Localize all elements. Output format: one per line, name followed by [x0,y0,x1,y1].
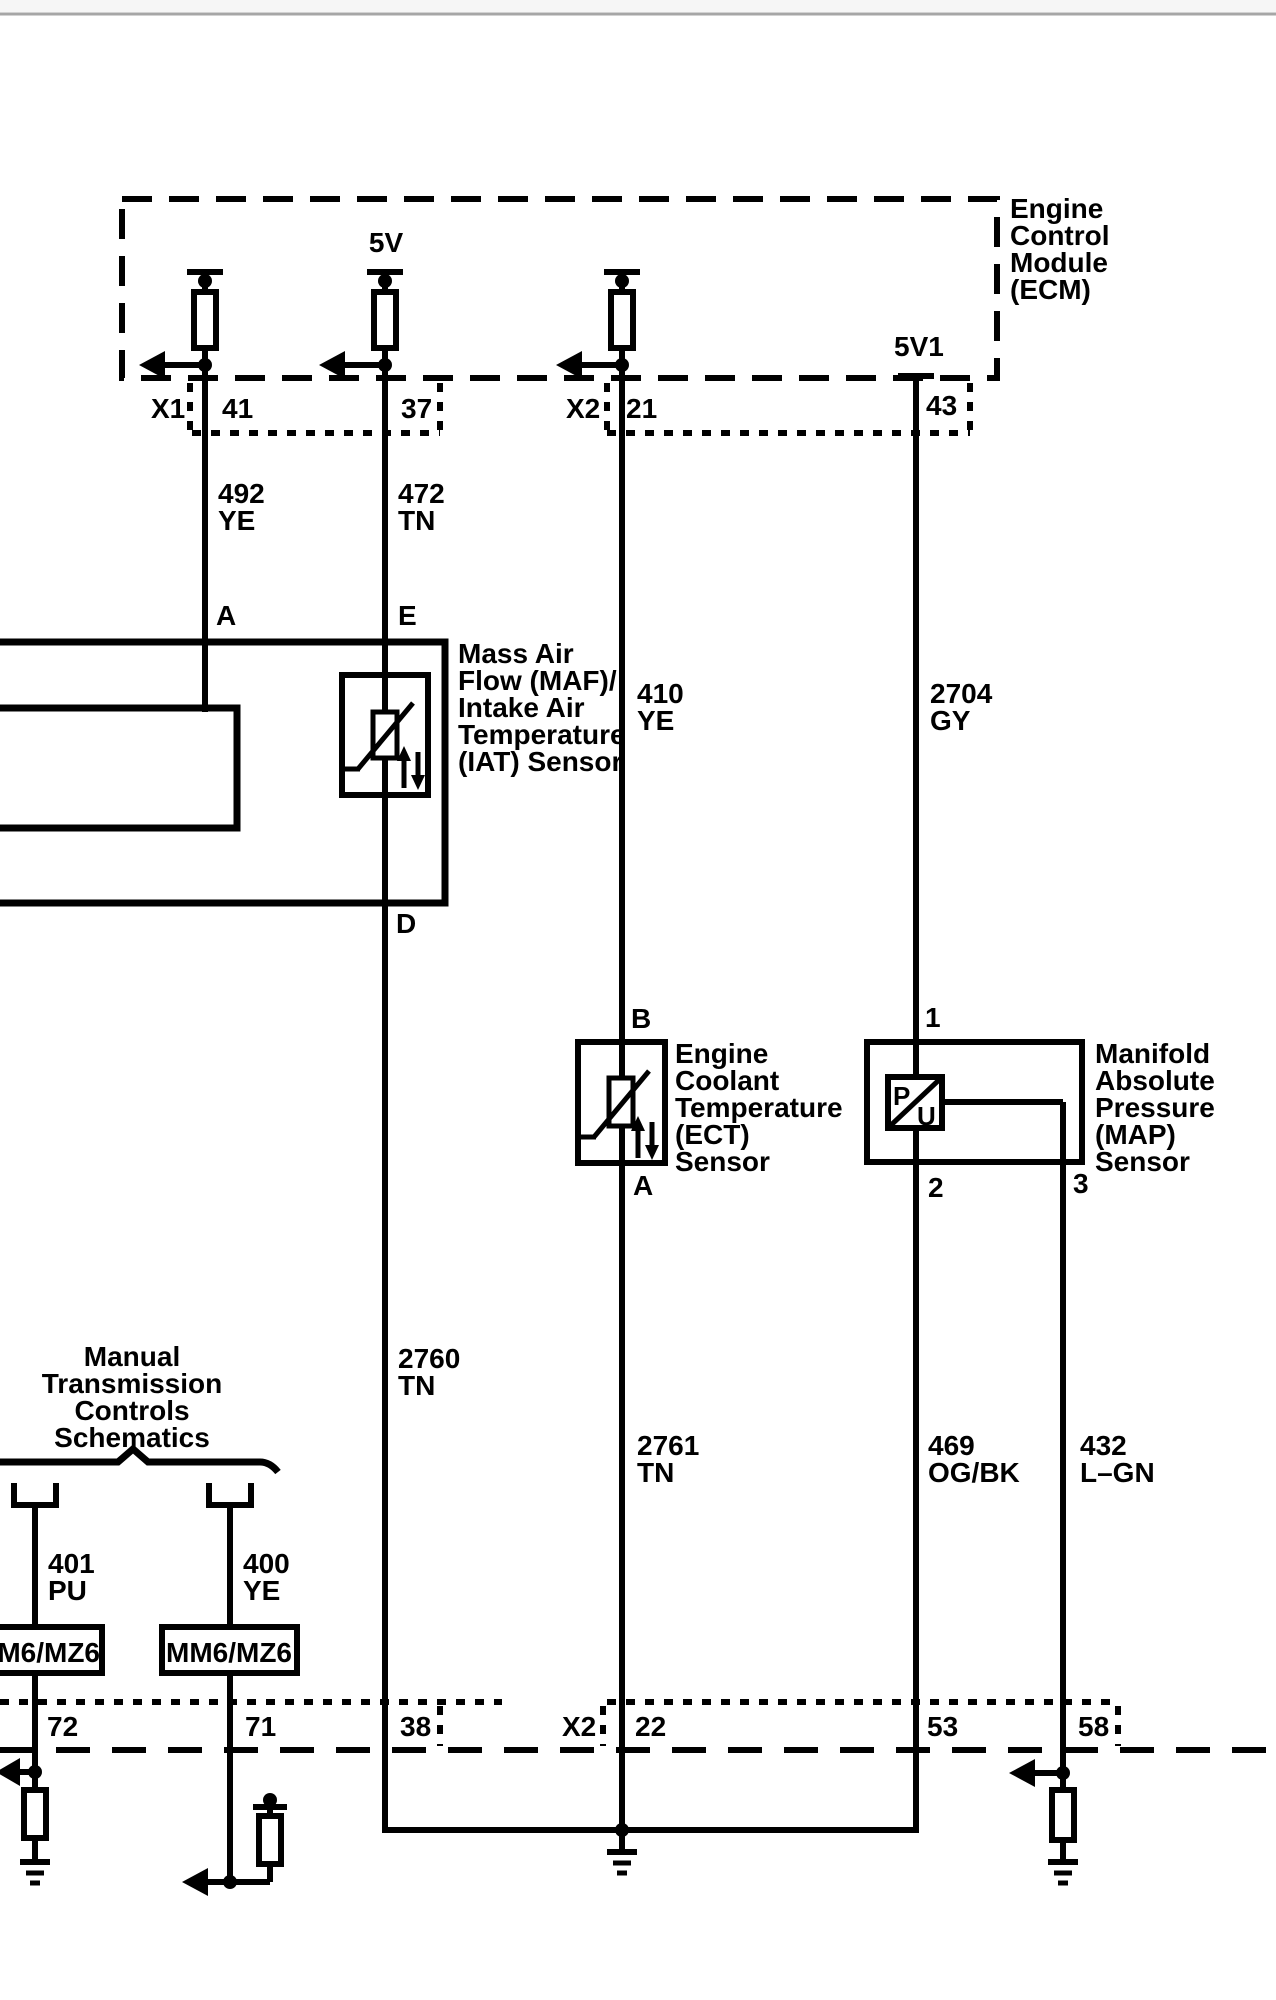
pin-43: 43 [926,390,957,421]
wire-label: YE [637,705,674,736]
map-pin-3: 3 [1073,1168,1089,1199]
bottom-connector: 72 71 38 X2 22 53 58 [0,1702,1276,1750]
pin-41: 41 [222,393,253,424]
pin-72: 72 [47,1711,78,1742]
top-connector: X1 41 37 X2 21 43 [151,383,970,433]
updown-arrows-icon [631,1116,659,1160]
mm6-mz6-label: MM6/MZ6 [0,1637,100,1668]
junction-dot [198,358,212,372]
termination-71 [182,1793,287,1896]
resistor-symbol [611,292,633,348]
pin-22: 22 [635,1711,666,1742]
down-arrow-head [411,775,425,790]
ecm-sensor-schematic: Engine Control Module (ECM) 5V 5V1 [0,0,1276,2000]
transducer-u: U [917,1101,936,1131]
maf-outer-box [0,642,445,903]
ground-icon [20,1862,50,1883]
connector-x1-label: X1 [151,393,185,424]
brace-icon [0,1449,278,1472]
maf-inner-box [0,708,237,828]
resistor-symbol [259,1816,281,1864]
junction-dot [378,274,392,288]
pin-38: 38 [400,1711,431,1742]
wire-label: TN [398,1370,435,1401]
map-label-line: Sensor [1095,1146,1190,1177]
junction-dot [28,1765,42,1779]
wire-label: TN [398,505,435,536]
wire-label: PU [48,1575,87,1606]
ecm-pullup-41 [139,272,223,379]
pin-53: 53 [927,1711,958,1742]
left-arrow-icon [319,351,345,379]
ecm-pullup-37 [319,272,403,379]
termination-58 [1009,1759,1078,1883]
junction-dot [1056,1766,1070,1780]
ecm-title: Engine Control Module (ECM) [1010,193,1110,305]
ecm-title-line: (ECM) [1010,274,1091,305]
junction-dot [223,1875,237,1889]
junction-dot [615,358,629,372]
junction-dot [615,274,629,288]
transducer-p: P [893,1081,910,1111]
wire-labels-upper: 492 YE 472 TN 410 YE 2704 GY [218,478,993,736]
maf-pin-e: E [398,600,417,631]
wiring-diagram-page: Engine Control Module (ECM) 5V 5V1 [0,0,1276,2000]
left-arrow-icon [182,1868,208,1896]
wire-label: YE [218,505,255,536]
maf-pin-a: A [216,600,236,631]
map-pin-1: 1 [925,1002,941,1033]
page-top-strip [0,0,1276,12]
wire-label: GY [930,705,971,736]
map-pin-2: 2 [928,1172,944,1203]
connector-x2-label: X2 [566,393,600,424]
mm6-mz6-label: MM6/MZ6 [166,1637,292,1668]
pin-21: 21 [626,393,657,424]
wire-labels-lower: 2760 TN 2761 TN 469 OG/BK 432 L–GN [398,1343,1155,1488]
ground-icon [607,1852,637,1873]
connector-x2-label: X2 [562,1711,596,1742]
pin-37: 37 [401,393,432,424]
wire-label: YE [243,1575,280,1606]
inline-connector-icon [206,1483,254,1505]
5v1-supply-label: 5V1 [894,331,944,362]
junction-dot [615,1823,629,1837]
left-arrow-icon [1009,1759,1035,1787]
termination-72 [0,1758,50,1883]
ecm-dashed-box [122,199,997,378]
junction-dot [378,358,392,372]
maf-iat-sensor: A E D Mass Air Flow (MAF)/ Intake Air Te… [0,600,626,939]
left-arrow-icon [139,351,165,379]
maf-label: Mass Air Flow (MAF)/ Intake Air Temperat… [458,638,626,777]
pin-71: 71 [245,1711,276,1742]
maf-pin-d: D [396,908,416,939]
ground-icon [1048,1862,1078,1883]
left-arrow-icon [556,351,582,379]
manual-trans-label: Manual Transmission Controls Schematics [42,1341,223,1453]
ecm-pullup-21 [556,272,640,379]
junction-dot [198,274,212,288]
left-arrow-icon [0,1758,20,1786]
updown-arrows-icon [397,746,425,790]
down-arrow-head [645,1145,659,1160]
resistor-symbol [1052,1790,1074,1840]
pin-58: 58 [1078,1711,1109,1742]
wire-label: OG/BK [928,1457,1020,1488]
ect-pin-a: A [633,1170,653,1201]
map-label: Manifold Absolute Pressure (MAP) Sensor [1095,1038,1215,1177]
ect-label: Engine Coolant Temperature (ECT) Sensor [675,1038,843,1177]
resistor-symbol [194,292,216,348]
ect-pin-b: B [631,1003,651,1034]
ect-sensor: B A Engine Coolant Temperature (ECT) Sen… [578,1003,843,1201]
resistor-symbol [374,292,396,348]
wire-label: TN [637,1457,674,1488]
inline-connector-icon [11,1483,59,1505]
maf-label-line: (IAT) Sensor [458,746,622,777]
manual-transmission-block: Manual Transmission Controls Schematics … [0,1341,297,1673]
ect-label-line: Sensor [675,1146,770,1177]
wire-label: L–GN [1080,1457,1155,1488]
resistor-symbol [24,1790,46,1838]
5v-supply-label: 5V [369,227,404,258]
